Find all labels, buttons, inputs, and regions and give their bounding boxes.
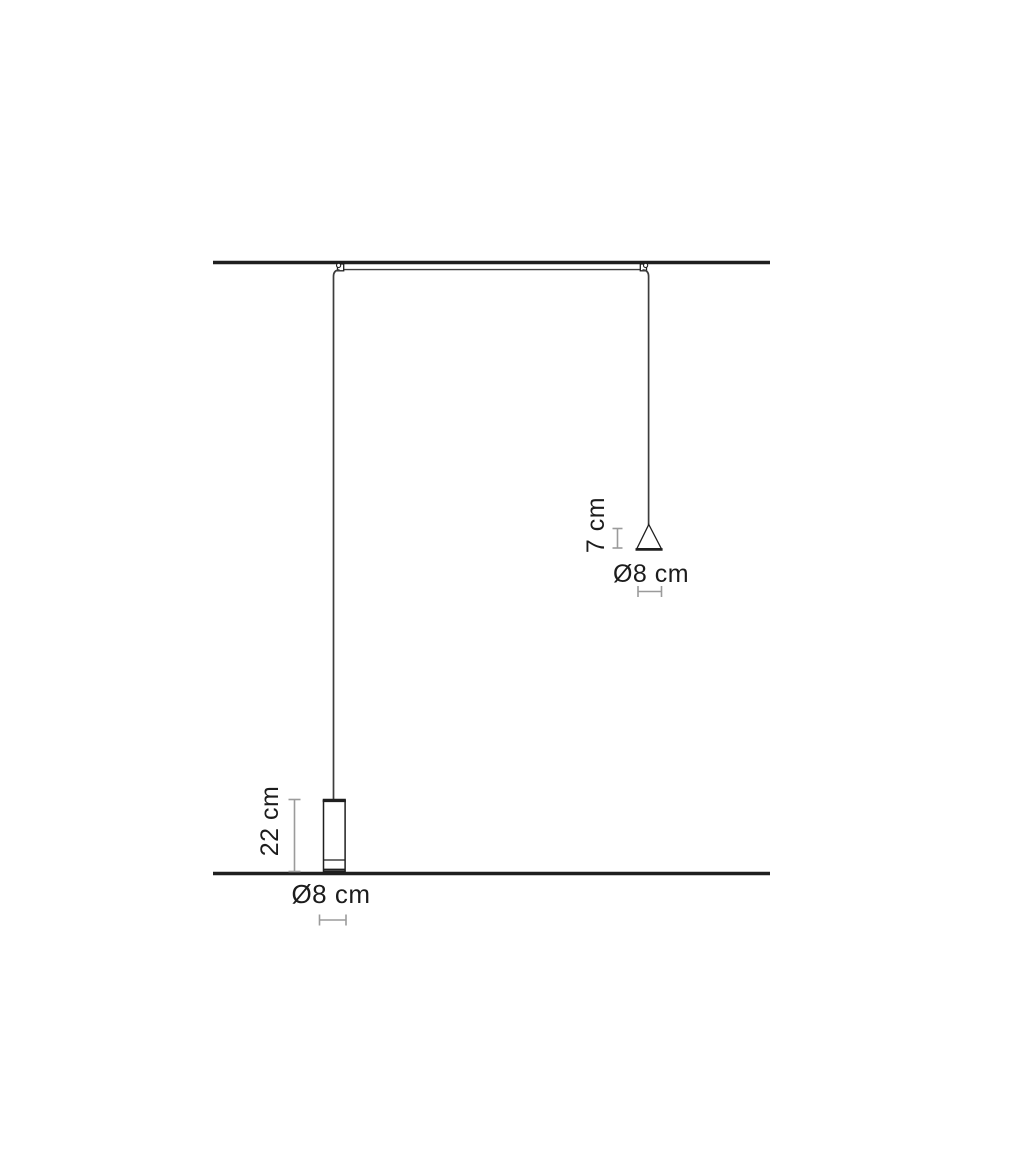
- cone-height-label: 7 cm: [583, 480, 609, 570]
- cylinder-base-fill: [323, 870, 346, 873]
- right-suspension-cable: [643, 270, 649, 525]
- cone-shade: [636, 525, 663, 550]
- pendant-lamp-dimension-diagram: 7 cm Ø8 cm 22 cm Ø8 cm: [0, 0, 1024, 1170]
- right-connector-knot: [644, 263, 648, 267]
- cylinder-height-dimension: [289, 800, 301, 872]
- left-connector-knot: [337, 263, 341, 267]
- cylinder-lamp: [323, 800, 346, 874]
- cone-height-dimension: [613, 529, 623, 549]
- cone-outline: [637, 525, 661, 549]
- left-suspension-cable: [334, 270, 340, 800]
- cylinder-diameter-label: Ø8 cm: [271, 881, 391, 907]
- cylinder-height-label: 22 cm: [257, 771, 283, 871]
- cylinder-body: [324, 800, 346, 874]
- line-art: [0, 0, 1024, 1170]
- cone-diameter-label: Ø8 cm: [591, 561, 711, 587]
- cylinder-diameter-dimension: [320, 915, 347, 926]
